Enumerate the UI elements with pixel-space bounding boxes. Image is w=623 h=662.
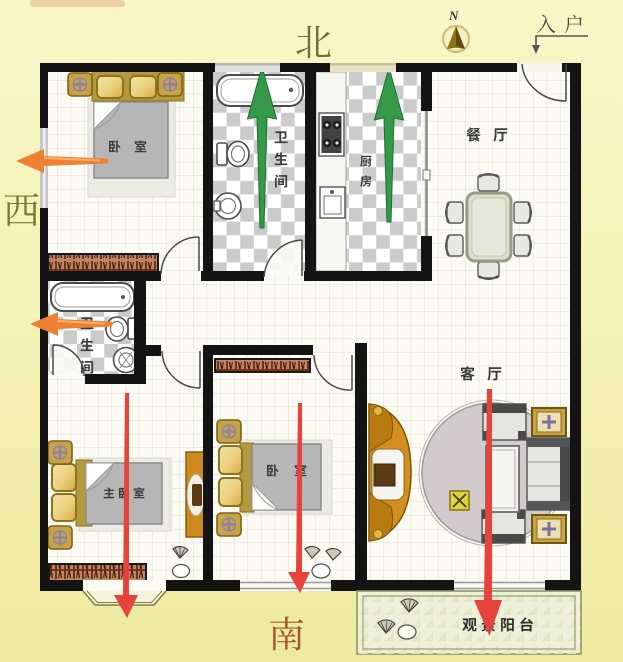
svg-text:N: N	[448, 8, 459, 23]
